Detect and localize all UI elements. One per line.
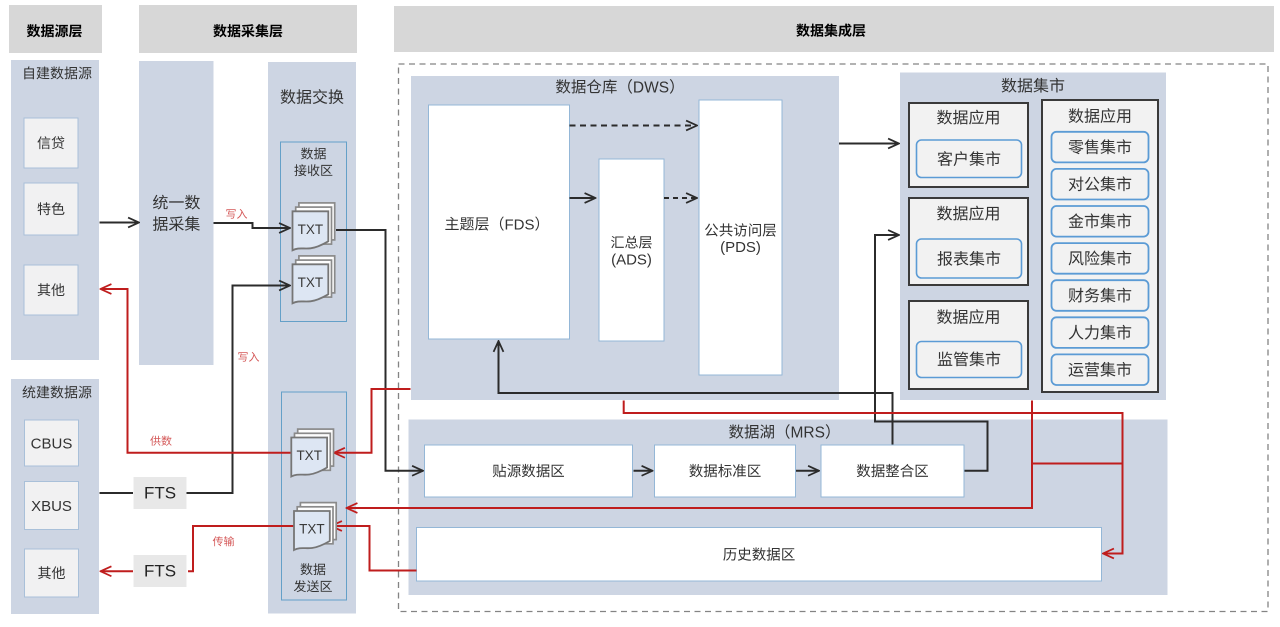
svg-text:FTS: FTS <box>144 484 176 503</box>
svg-text:MRS: MRS <box>791 425 825 442</box>
svg-text:DWS: DWS <box>633 79 669 96</box>
svg-text:XBUS: XBUS <box>31 498 72 515</box>
svg-text:TXT: TXT <box>296 448 322 463</box>
svg-text:TXT: TXT <box>298 275 324 290</box>
svg-text:FDS: FDS <box>505 216 535 233</box>
svg-text:CBUS: CBUS <box>31 436 73 453</box>
svg-text:(ADS): (ADS) <box>611 252 652 269</box>
svg-text:(PDS): (PDS) <box>720 239 761 256</box>
svg-text:FTS: FTS <box>144 562 176 581</box>
svg-text:TXT: TXT <box>299 522 325 537</box>
svg-text:TXT: TXT <box>298 222 324 237</box>
